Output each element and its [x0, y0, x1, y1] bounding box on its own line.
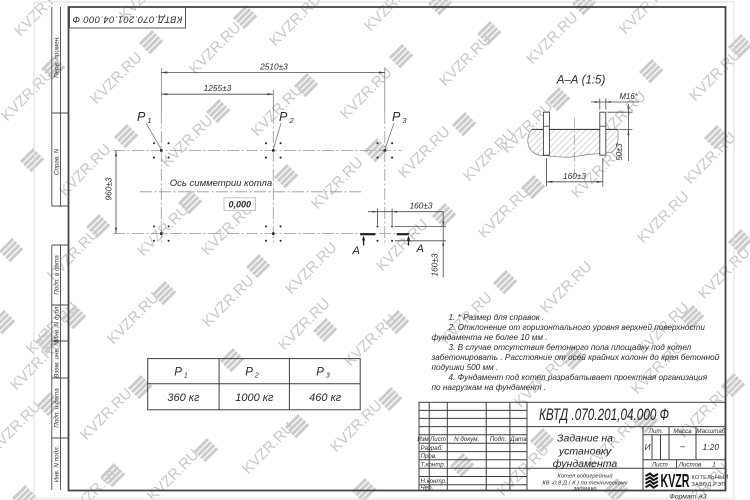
svg-text:3. В случае отсутствия бет: 3. В случае отсутствия бетонного пола пл… — [449, 343, 692, 352]
svg-text:KVZR.RU: KVZR.RU — [77, 385, 136, 444]
svg-text:KVZR.RU: KVZR.RU — [144, 446, 203, 500]
svg-text:по нагрузкам на фундамент .: по нагрузкам на фундамент . — [432, 383, 547, 392]
svg-text:2510±3: 2510±3 — [259, 62, 288, 72]
svg-text:Взам. инв. N: Взам. инв. N — [54, 341, 61, 378]
svg-text:Лит.: Лит. — [648, 428, 664, 435]
svg-text:KVZR.RU: KVZR.RU — [327, 397, 386, 456]
svg-text:KVZR.RU: KVZR.RU — [537, 258, 596, 317]
svg-text:подушки 500 мм .: подушки 500 мм . — [432, 363, 499, 372]
svg-text:ЗАВОД РЭП: ЗАВОД РЭП — [692, 482, 726, 488]
svg-text:1000 кг: 1000 кг — [235, 392, 274, 404]
svg-text:Масса: Масса — [673, 428, 692, 435]
svg-text:KVZR.RU: KVZR.RU — [134, 201, 193, 260]
svg-text:Лист: Лист — [429, 436, 446, 443]
svg-text:KVZR.RU: KVZR.RU — [275, 295, 334, 354]
svg-text:Чеб.: Чеб. — [421, 485, 434, 492]
svg-text:фундамента: фундамента — [553, 458, 618, 470]
svg-text:А: А — [352, 245, 360, 257]
svg-text:N докум.: N докум. — [454, 436, 479, 443]
svg-text:Дата: Дата — [509, 436, 527, 443]
svg-text:Ось симметрии котла: Ось симметрии котла — [170, 178, 272, 189]
svg-text:160±3: 160±3 — [563, 171, 586, 181]
svg-text:2. Отклонение от горизонтал: 2. Отклонение от горизонтального уровня … — [448, 323, 706, 332]
svg-text:1. * Размер для справок .: 1. * Размер для справок . — [449, 313, 545, 322]
svg-text:Пров.: Пров. — [421, 453, 437, 460]
svg-text:960±3: 960±3 — [104, 177, 114, 200]
svg-text:KVZR.RU: KVZR.RU — [87, 49, 146, 108]
svg-text:KVZR.RU: KVZR.RU — [158, 112, 217, 171]
svg-text:KVZR.RU: KVZR.RU — [104, 289, 163, 348]
svg-text:КОТЕЛЬНЫЙ: КОТЕЛЬНЫЙ — [692, 473, 729, 481]
svg-text:P 1: P 1 — [137, 110, 152, 125]
svg-text:460 кг: 460 кг — [309, 392, 342, 404]
svg-text:1255±3: 1255±3 — [204, 83, 232, 93]
svg-text:50±3: 50±3 — [615, 143, 624, 161]
svg-text:фундамента не более 10 м: фундамента не более 10 мм . — [432, 333, 548, 342]
svg-text:KVZR.RU: KVZR.RU — [0, 398, 45, 457]
svg-text:P 2: P 2 — [279, 110, 294, 125]
svg-text:Котел водогрейный: Котел водогрейный — [557, 473, 613, 480]
svg-text:заданию: заданию — [572, 486, 597, 492]
svg-text:KVZR.RU: KVZR.RU — [523, 9, 582, 68]
svg-text:Подп. и дата: Подп. и дата — [53, 255, 61, 295]
svg-text:KVZR.RU: KVZR.RU — [395, 123, 454, 182]
svg-text:KVZR.RU: KVZR.RU — [282, 239, 341, 298]
svg-text:И: И — [644, 442, 651, 452]
svg-text:KVZR.RU: KVZR.RU — [695, 244, 750, 303]
svg-text:P 2: P 2 — [245, 367, 259, 380]
svg-text:P 1: P 1 — [174, 367, 188, 380]
svg-text:Справ. N: Справ. N — [54, 148, 61, 175]
svg-text:Инв. N подл.: Инв. N подл. — [53, 446, 61, 483]
svg-text:4. Фундамент под котел раз: 4. Фундамент под котел разрабатывает про… — [449, 373, 708, 382]
svg-text:0,000: 0,000 — [229, 199, 252, 209]
svg-text:–: – — [679, 441, 685, 451]
svg-text:Т.контр.: Т.контр. — [421, 461, 446, 468]
svg-text:Масштаб: Масштаб — [696, 428, 725, 435]
svg-text:360 кг: 360 кг — [167, 392, 200, 404]
svg-text:забетонировать . Расстояние: забетонировать . Расстояние от осей край… — [431, 353, 720, 362]
svg-text:160±3: 160±3 — [430, 253, 440, 276]
svg-text:Лист: Лист — [651, 461, 668, 468]
svg-text:Перв. примен.: Перв. примен. — [54, 36, 61, 78]
svg-text:Задание на: Задание на — [557, 433, 613, 445]
svg-text:Формат А3: Формат А3 — [669, 493, 706, 500]
svg-text:P 3: P 3 — [392, 110, 407, 125]
svg-text:Изм.: Изм. — [417, 436, 430, 443]
svg-text:Листов: Листов — [678, 461, 702, 468]
svg-text:установку: установку — [558, 446, 612, 458]
svg-text:КВТД.070.201.04.000 Ф: КВТД.070.201.04.000 Ф — [72, 14, 182, 25]
svg-text:Разраб.: Разраб. — [421, 445, 443, 452]
svg-text:Подп. и дата: Подп. и дата — [53, 388, 61, 428]
svg-text:KVZR.RU: KVZR.RU — [199, 272, 258, 331]
svg-text:Подп.: Подп. — [490, 436, 506, 443]
svg-text:А–А (1:5): А–А (1:5) — [556, 75, 606, 87]
svg-text:KVZR: KVZR — [661, 471, 690, 491]
svg-text:1: 1 — [712, 461, 715, 468]
svg-text:160±3: 160±3 — [409, 200, 432, 210]
svg-text:KVZR.RU: KVZR.RU — [308, 154, 367, 213]
svg-text:КВТД .070.201,04.000 Ф: КВТД .070.201,04.000 Ф — [539, 405, 669, 424]
svg-text:KVZR.RU: KVZR.RU — [634, 188, 693, 247]
svg-text:Инв. N дубл.: Инв. N дубл. — [53, 305, 61, 341]
svg-text:KVZR.RU: KVZR.RU — [361, 0, 420, 35]
svg-text:KVZR.RU: KVZR.RU — [616, 0, 675, 38]
svg-text:M16*: M16* — [620, 92, 639, 101]
svg-text:KVZR.RU: KVZR.RU — [239, 419, 298, 478]
svg-text:P 3: P 3 — [316, 367, 330, 380]
svg-text:KVZR.RU: KVZR.RU — [186, 19, 245, 78]
svg-text:А: А — [416, 243, 424, 255]
svg-text:1:20: 1:20 — [703, 442, 720, 452]
